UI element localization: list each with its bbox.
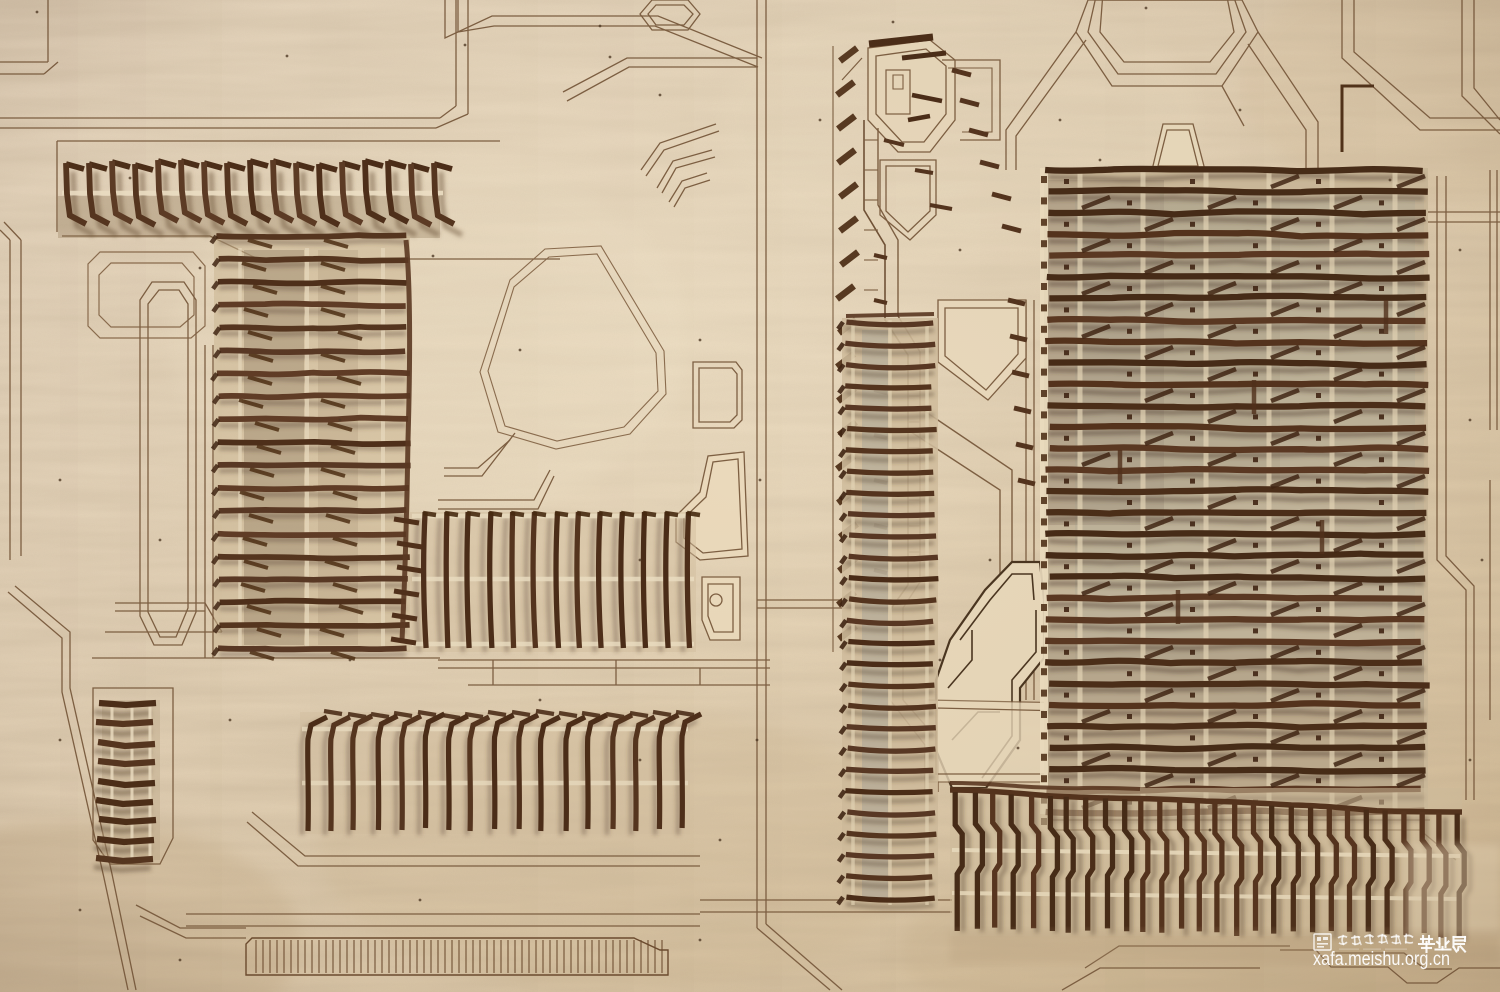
svg-text:xafa.meishu.org.cn: xafa.meishu.org.cn: [1313, 948, 1450, 970]
